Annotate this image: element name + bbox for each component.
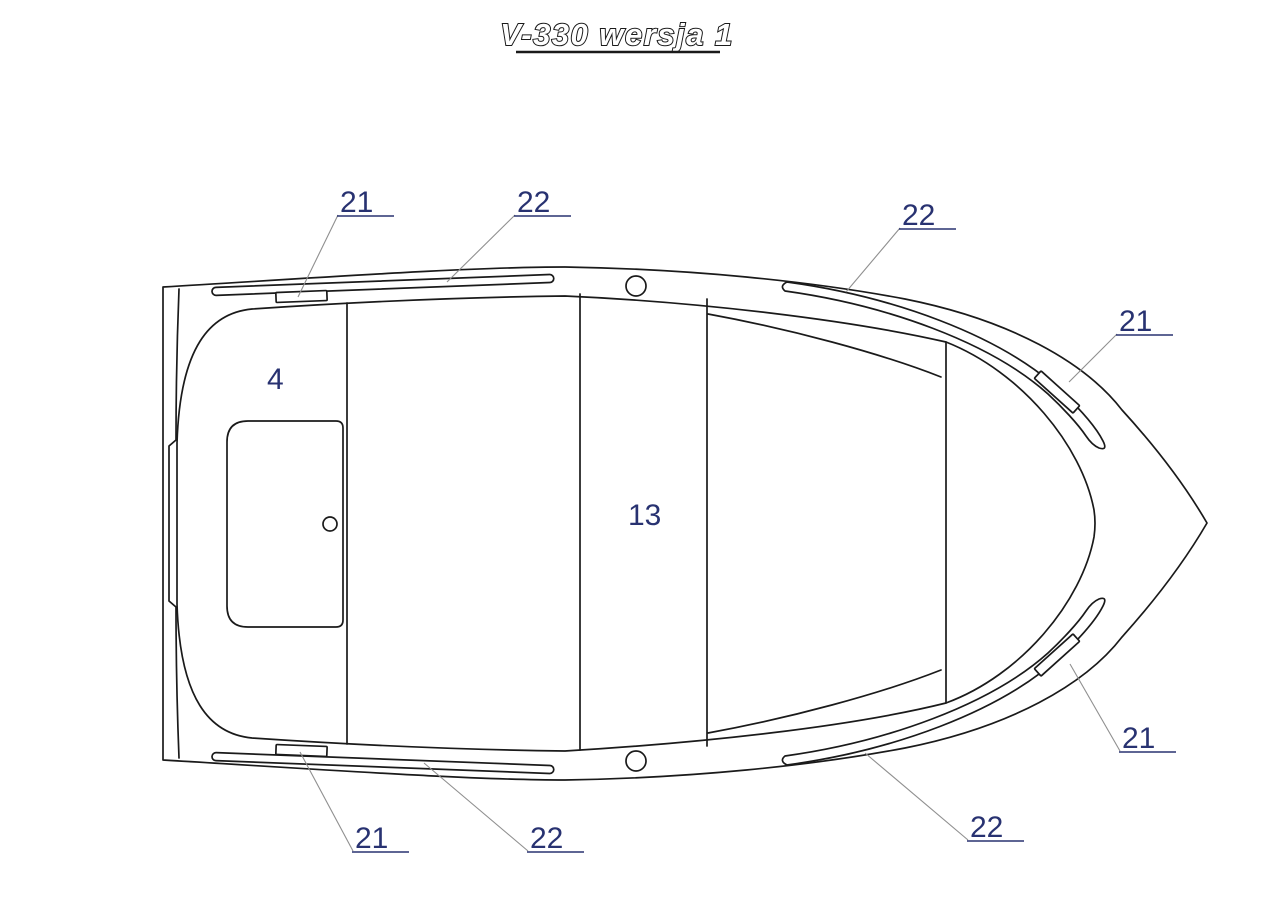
- part-label-21-bottom-left: 21: [355, 822, 388, 855]
- oarlock-socket-bottom: [626, 751, 646, 771]
- rub-rail-bow-top: [782, 282, 1104, 449]
- rub-rail-bow-bottom: [782, 598, 1104, 765]
- boat-diagram-canvas: V-330 wersja 1 21 22: [0, 0, 1280, 905]
- leader-21-bottom-left: [300, 752, 353, 851]
- leader-21-bow-bottom: [1070, 664, 1120, 751]
- part-label-22-top-right: 22: [902, 199, 935, 232]
- part-label-21-bow-top: 21: [1119, 305, 1152, 338]
- rub-rail-bottom-left: [212, 753, 554, 774]
- part-label-22-bottom-right: 22: [970, 811, 1003, 844]
- oarlock-socket-top: [626, 276, 646, 296]
- leader-lines: [298, 215, 1120, 851]
- hatch-knob: [323, 517, 337, 531]
- part-label-21-bow-bottom: 21: [1122, 722, 1155, 755]
- part-label-13-thwart: 13: [628, 499, 661, 532]
- rub-rail-top-left: [212, 274, 554, 295]
- part-label-21-top-left: 21: [340, 186, 373, 219]
- part-label-22-top-center: 22: [517, 186, 550, 219]
- page-title: V-330 wersja 1: [500, 17, 734, 52]
- leader-22-bottom-right: [865, 753, 968, 840]
- leader-22-bottom-center: [424, 763, 528, 851]
- boat-drawing-page: V-330 wersja 1 21 22: [0, 0, 1280, 905]
- leader-22-top-right: [846, 228, 900, 292]
- drawing-title-block: V-330 wersja 1: [500, 17, 734, 52]
- cleat-bow-top: [1034, 371, 1079, 413]
- part-label-4-stern-deck: 4: [267, 363, 284, 396]
- leader-22-top-center: [447, 215, 515, 282]
- leader-21-bow-top: [1069, 334, 1117, 382]
- side-deck-coaming-top: [708, 314, 941, 377]
- cleat-top-left: [276, 291, 327, 303]
- side-deck-coaming-bottom: [708, 670, 941, 733]
- part-label-22-bottom-center: 22: [530, 822, 563, 855]
